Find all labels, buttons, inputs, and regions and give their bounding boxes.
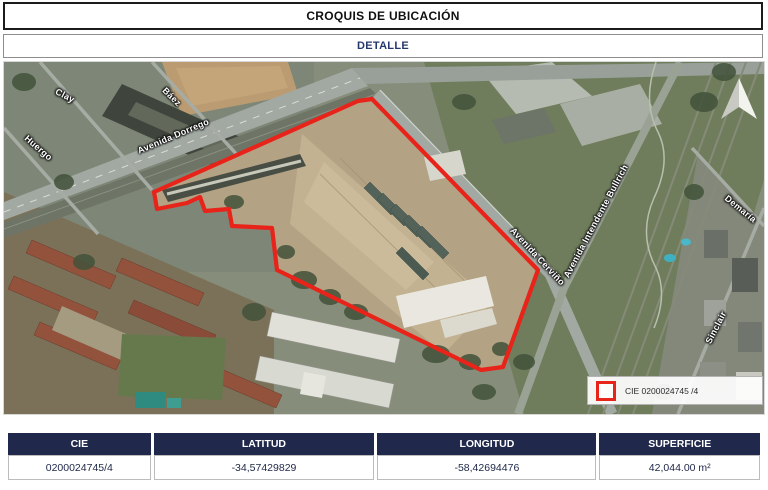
column-header-cie: CIE — [8, 433, 151, 455]
cell-latitud: -34,57429829 — [154, 455, 375, 480]
page-title: CROQUIS DE UBICACIÓN — [3, 2, 763, 30]
legend-parcel-swatch-icon — [596, 381, 616, 401]
legend-label: CIE 0200024745 /4 — [625, 386, 698, 396]
section-subtitle-text: DETALLE — [357, 40, 409, 52]
parcel-info-table: CIE LATITUD LONGITUD SUPERFICIE 02000247… — [5, 433, 763, 480]
croquis-page: CROQUIS DE UBICACIÓN DETALLE — [0, 0, 768, 490]
column-header-superficie: SUPERFICIE — [599, 433, 760, 455]
map-legend: CIE 0200024745 /4 — [587, 376, 763, 405]
table-row: 0200024745/4 -34,57429829 -58,42694476 4… — [8, 455, 760, 480]
satellite-imagery — [4, 62, 764, 414]
column-header-longitud: LONGITUD — [377, 433, 596, 455]
page-title-text: CROQUIS DE UBICACIÓN — [306, 9, 459, 23]
cell-longitud: -58,42694476 — [377, 455, 596, 480]
cell-superficie: 42,044.00 m² — [599, 455, 760, 480]
table-header-row: CIE LATITUD LONGITUD SUPERFICIE — [8, 433, 760, 455]
satellite-map[interactable]: Clay Báez Huergo Avenida Dorrego Avenida… — [4, 62, 764, 414]
column-header-latitud: LATITUD — [154, 433, 375, 455]
cell-cie: 0200024745/4 — [8, 455, 151, 480]
section-subtitle: DETALLE — [3, 34, 763, 58]
